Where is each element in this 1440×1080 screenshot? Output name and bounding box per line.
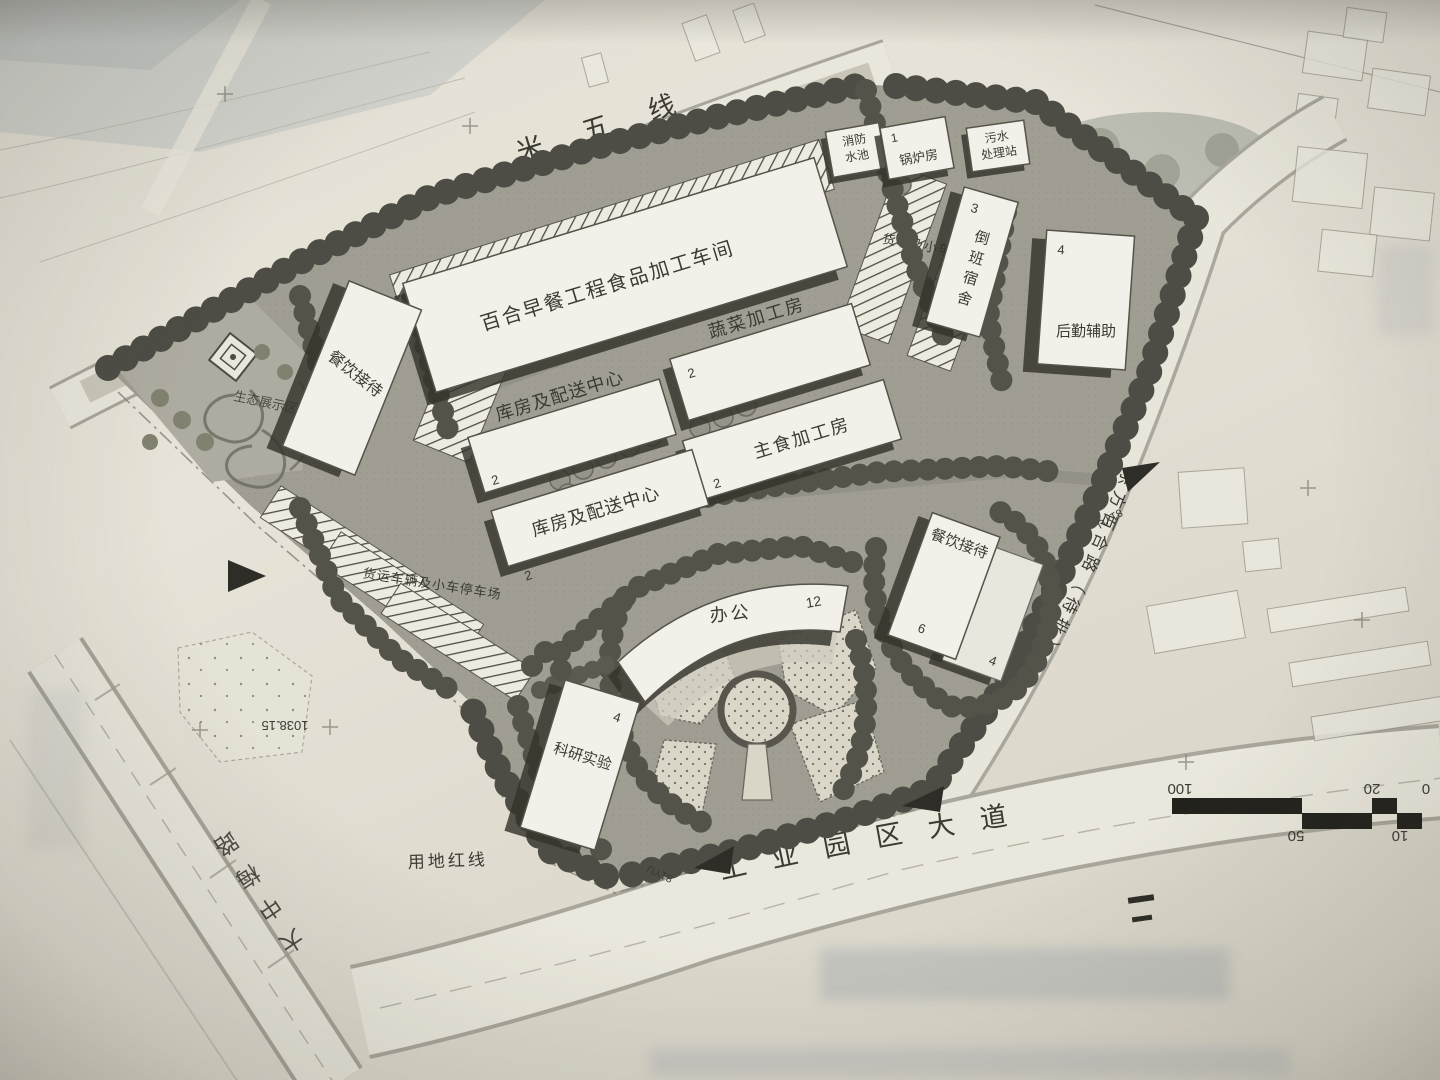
- site-plan-scan: 米五线 东方百合路（待批） 工业园区大道 大中梅路: [0, 0, 1440, 1080]
- scale-50: 50: [1288, 827, 1305, 844]
- scale-0: 0: [1422, 780, 1430, 797]
- building-logistics: 4 后勤辅助: [1023, 229, 1135, 379]
- building-office-number: 12: [804, 592, 822, 610]
- plaza-fountain: [721, 674, 793, 746]
- scale-100: 100: [1167, 780, 1192, 797]
- building-logistics-label: 后勤辅助: [1056, 323, 1116, 340]
- building-sewage: 污水 处理站: [960, 120, 1030, 178]
- pond-area: 1038.15: [178, 632, 338, 762]
- arrow-west-icon: [228, 560, 266, 592]
- red-line-label: 用地红线: [407, 850, 488, 872]
- scale-20: 20: [1364, 780, 1381, 797]
- road-tick-mark: [1128, 894, 1155, 904]
- building-boiler: 1 锅炉房: [873, 117, 955, 188]
- building-logistics-number: 4: [1057, 242, 1065, 257]
- scale-10: 10: [1392, 827, 1409, 844]
- site-plan-drawing: 米五线 东方百合路（待批） 工业园区大道 大中梅路: [0, 0, 1440, 1080]
- elevation-label: 1038.15: [262, 718, 309, 733]
- offsite-north-buildings: [581, 3, 765, 87]
- road-tick-mark2: [1132, 915, 1153, 923]
